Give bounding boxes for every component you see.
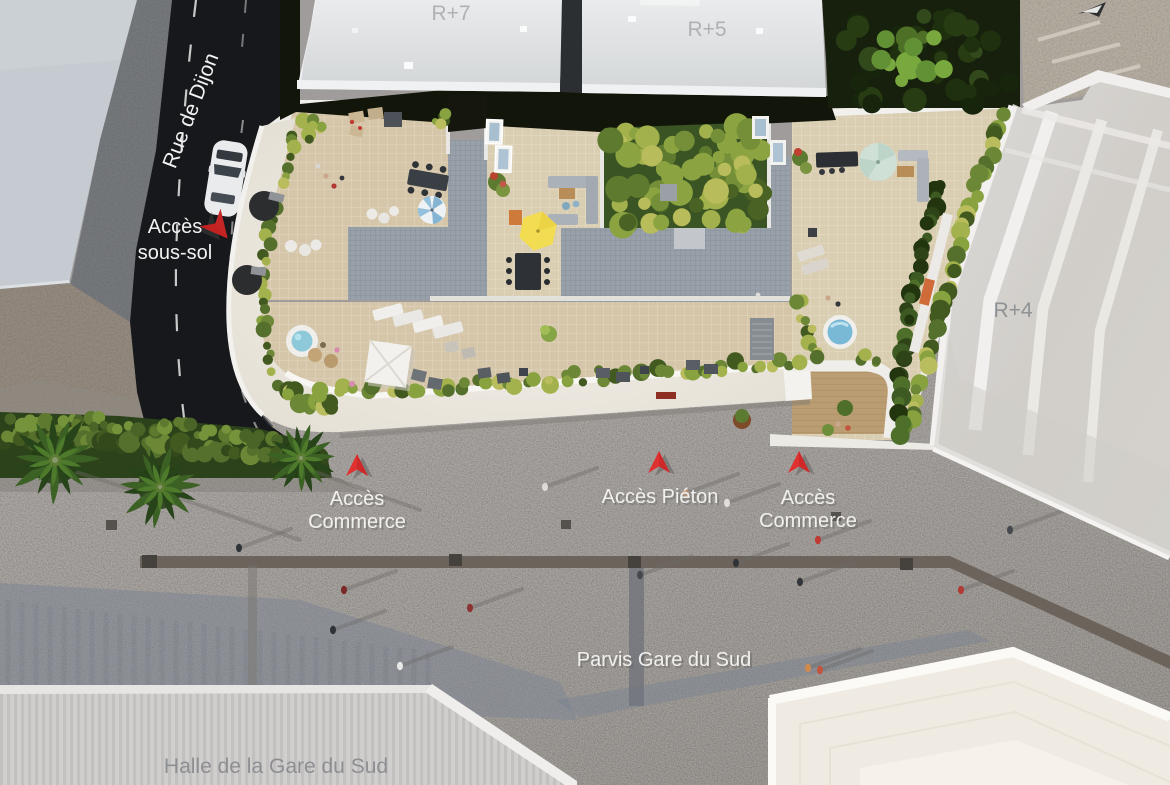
svg-text:Halle de la Gare du Sud: Halle de la Gare du Sud xyxy=(164,755,388,778)
svg-text:R+4: R+4 xyxy=(993,299,1032,322)
svg-text:sous-sol: sous-sol xyxy=(138,242,212,264)
svg-text:Accès Piéton: Accès Piéton xyxy=(602,486,719,508)
svg-text:Accès: Accès xyxy=(330,488,384,510)
svg-text:Accès: Accès xyxy=(781,487,835,509)
svg-text:Parvis Gare du Sud: Parvis Gare du Sud xyxy=(577,649,752,671)
svg-text:Commerce: Commerce xyxy=(759,510,857,532)
svg-text:Commerce: Commerce xyxy=(308,511,406,533)
svg-text:Accès: Accès xyxy=(148,216,202,238)
svg-text:R+5: R+5 xyxy=(687,18,726,41)
svg-text:R+7: R+7 xyxy=(431,2,470,25)
